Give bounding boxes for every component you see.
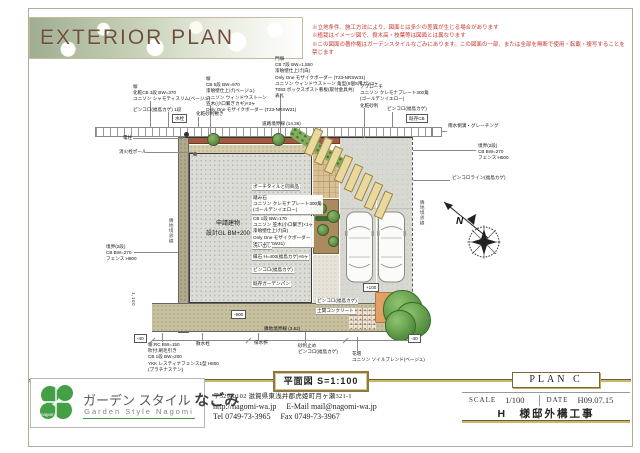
plan-annotation-30: -900 (231, 310, 246, 319)
utility-pole-symbol (184, 132, 189, 137)
leader-line (168, 112, 169, 127)
leader-line (152, 340, 412, 341)
leader-line (146, 152, 193, 153)
scale-label: SCALE (469, 396, 496, 404)
compass-rose: N (438, 196, 506, 264)
leader-line (150, 101, 151, 127)
fax-number: 0749-73-3967 (294, 412, 339, 421)
plan-annotation-36: 排水桝 (254, 340, 268, 346)
plan-annotation-35: 散水栓 (196, 341, 210, 347)
hydrant-pole-symbol (193, 152, 197, 156)
plan-annotation-11: 道路境界線 (14.36) (262, 121, 301, 127)
plan-annotation-9: 電柱 (123, 135, 132, 141)
footer-right-gold-rule (462, 420, 630, 423)
plan-annotation-25: ピンコロ(福島カゲ) (252, 267, 294, 274)
drawing-title-box: 平面図 S=1:100 (273, 371, 369, 392)
scale-date-row: SCALE 1/100 DATE H09.07.15 (462, 392, 630, 407)
plan-annotation-16: 隣地境界線 (168, 218, 174, 244)
email-address: mail@nagomi-wa.jp (311, 402, 377, 411)
plan-annotation-37: 砂利止め ピンコロ(福島カゲ) (298, 343, 338, 355)
website-url: http://nagomi-wa.jp (213, 402, 276, 411)
car-icon (345, 210, 374, 284)
leader-line (134, 252, 178, 253)
plan-annotation-12: 雨水側溝・グレーチング (448, 123, 499, 129)
leader-line (413, 150, 476, 151)
date-value: H09.07.15 (577, 395, 613, 405)
address-block: 〒529-0102 滋賀県東浅井郡虎姫町月ヶ瀬321-1 http://nago… (213, 391, 443, 421)
plan-annotation-19: 申請建物 設計GL BM+200 (206, 220, 250, 239)
leader-line (364, 108, 365, 138)
plan-annotation-1: ピンコロ(福島カゲ) 1段 (133, 107, 181, 113)
logo-jp-prefix: ガーデン スタイル (83, 393, 194, 408)
postal-address: 〒529-0102 滋賀県東浅井郡虎姫町月ヶ瀬321-1 (213, 391, 443, 400)
divider (539, 395, 540, 406)
plan-annotation-20: ポーチタイルと同商品 (252, 184, 300, 191)
date-label: DATE (547, 396, 569, 404)
tel-label: Tel (213, 412, 223, 421)
leader-line (413, 180, 450, 181)
leader-line (442, 131, 447, 132)
compass-north-label: N (456, 216, 464, 227)
plan-annotation-13: 境界(2段) CB BW=270 フェンス H500 (478, 143, 509, 162)
tel-number: 0749-73-3965 (225, 412, 270, 421)
plan-annotation-24: 縁石 H=400(福島カゲ)×6ヶ (252, 254, 309, 261)
plan-annotation-0: 塀 化粧CB 3段 BW=370 ユニソン シャモティスリム(ベージュ) (133, 84, 210, 103)
fax-label: Fax (280, 412, 292, 421)
scale-value: 1/100 (505, 395, 524, 405)
email-label: E-Mail (286, 402, 309, 411)
plan-annotation-27: ピンコロ(福島カゲ) (316, 298, 358, 305)
leader-line (392, 112, 393, 127)
plan-annotation-31: -40 (134, 334, 147, 343)
gravel-strip (189, 145, 312, 153)
company-logo-box: nagomi ガーデン スタイル なごみ Garden Style Nagomi (30, 378, 205, 428)
plan-code-box: PLAN C (512, 372, 600, 388)
contact-phone-line: Tel 0749-73-3965Fax 0749-73-3967 (213, 412, 443, 421)
plan-annotation-32: -40 (408, 334, 421, 343)
gutter-end-box (432, 127, 442, 137)
plan-annotation-33: 隣地境界線 (3.62) (264, 326, 300, 332)
leader-line (305, 332, 306, 343)
logo-company-name-en: Garden Style Nagomi (83, 407, 195, 419)
contact-web-line: http://nagomi-wa.jpE-Mail mail@nagomi-wa… (213, 402, 443, 411)
logo-mark-text: nagomi (41, 412, 56, 417)
plant (328, 236, 339, 247)
plan-annotation-14: ピンコロライン(福島カゲ) (452, 175, 506, 181)
plan-annotation-15: 隣地境界線 (419, 200, 425, 226)
clover-logo-icon: nagomi (36, 382, 78, 424)
plan-annotation-10: 消火栓ポール (119, 149, 147, 155)
plan-annotation-38: 花壇 ユニソン ソイルブレンド(ベージュ) (352, 351, 425, 363)
plan-annotation-21: 踏み石 ユニソン クレモナプレート300角 (ゴールデンイエロー) (252, 195, 323, 215)
shrub (207, 133, 220, 146)
plan-annotation-17: 境界(2段) CB BW=270 フェンス H800 (106, 244, 137, 263)
plan-annotation-6: ピンコロ(福島カゲ) (387, 106, 427, 112)
plant (327, 210, 340, 223)
washed-concrete-path (313, 255, 339, 303)
project-name: H 様邸外構工事 (462, 406, 630, 421)
plan-annotation-26: 既存ガーデンパン (252, 281, 291, 288)
plant (317, 224, 329, 236)
plan-annotation-18: 1,100 (130, 292, 136, 306)
plan-annotation-23: 洗い出し (252, 243, 272, 250)
leader-line (258, 333, 259, 340)
road-gutter-grating (95, 127, 432, 137)
shrub (272, 133, 285, 146)
leader-line (198, 117, 199, 127)
car-icon (377, 210, 406, 284)
plan-annotation-28: 土間コンクリート (316, 308, 355, 315)
plan-annotation-8: 水栓 (172, 114, 187, 123)
plan-annotation-7: 既存CB (406, 114, 428, 123)
plan-annotation-5: 化粧砂利敷き (196, 111, 224, 117)
leader-line (133, 138, 183, 139)
plan-annotation-29: +100 (363, 283, 379, 292)
